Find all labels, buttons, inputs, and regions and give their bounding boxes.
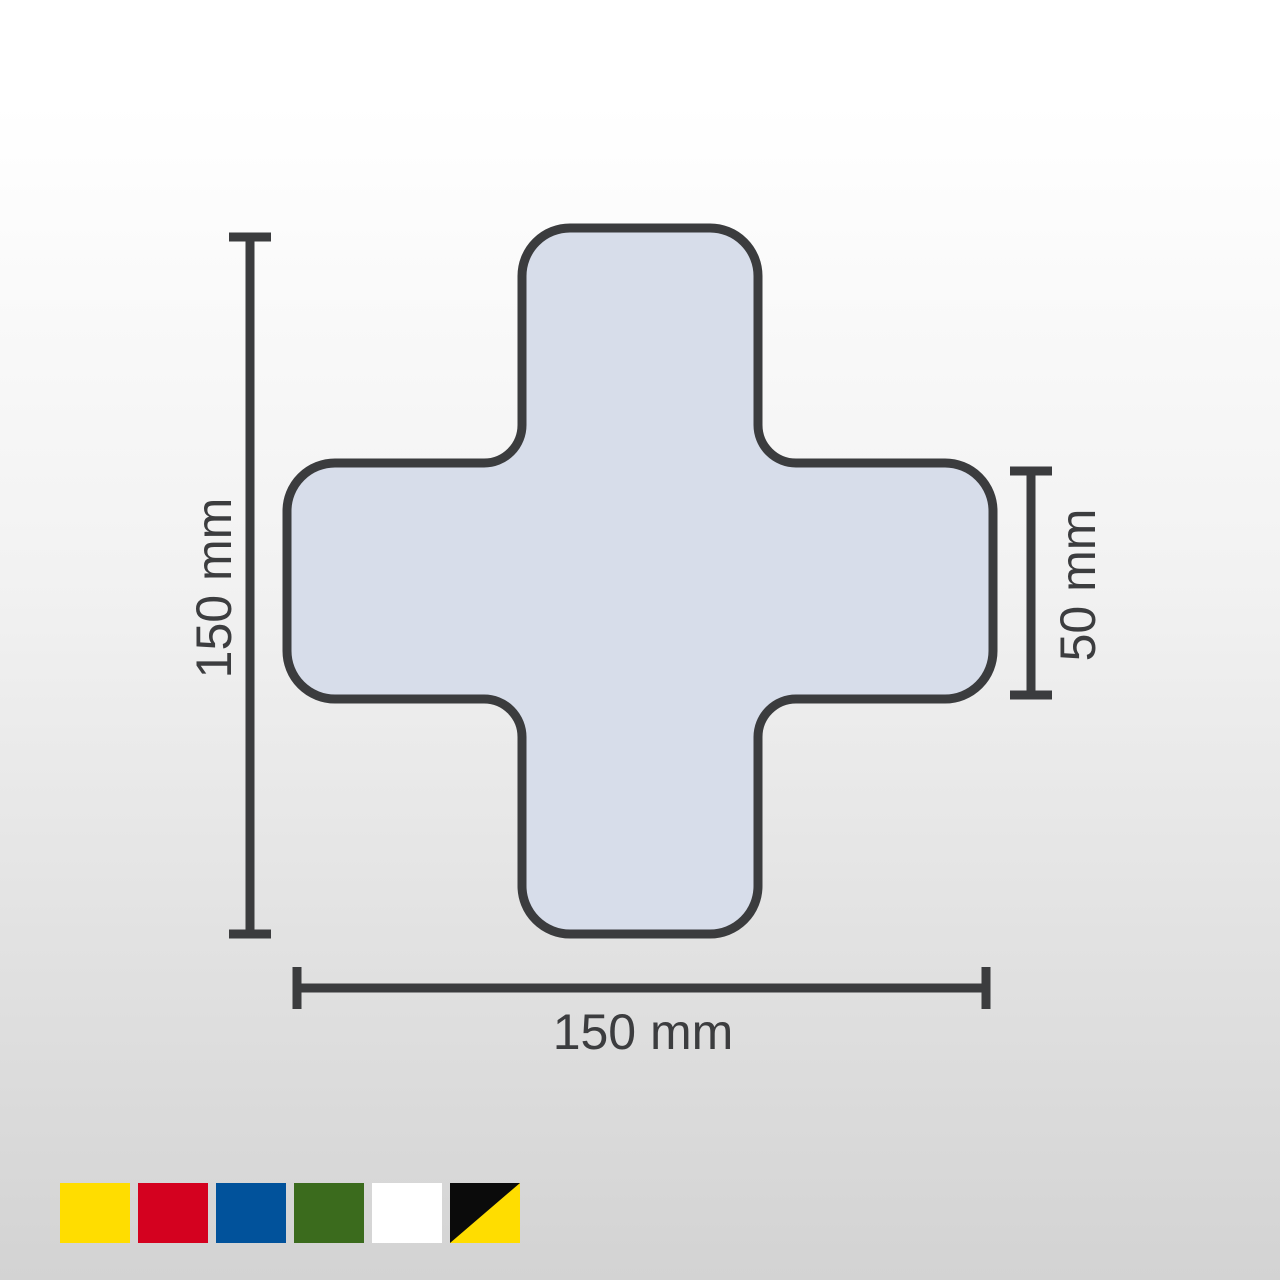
color-swatch-blue xyxy=(216,1183,286,1243)
cross-shape xyxy=(287,228,993,934)
color-swatch-yellow xyxy=(60,1183,130,1243)
color-swatch-green xyxy=(294,1183,364,1243)
product-diagram: 150 mm 150 mm 50 mm xyxy=(0,0,1280,1280)
color-swatch-black-yellow xyxy=(450,1183,520,1243)
color-options-row xyxy=(60,1183,520,1243)
arm-width-dimension-line xyxy=(1010,471,1052,695)
diagram-svg: 150 mm 150 mm 50 mm xyxy=(0,0,1280,1280)
width-dimension-line xyxy=(297,967,986,1009)
arm-width-dimension-label: 50 mm xyxy=(1050,509,1106,662)
width-dimension-label: 150 mm xyxy=(553,1004,734,1060)
color-swatch-white xyxy=(372,1183,442,1243)
color-swatch-red xyxy=(138,1183,208,1243)
height-dimension-label: 150 mm xyxy=(186,498,242,679)
